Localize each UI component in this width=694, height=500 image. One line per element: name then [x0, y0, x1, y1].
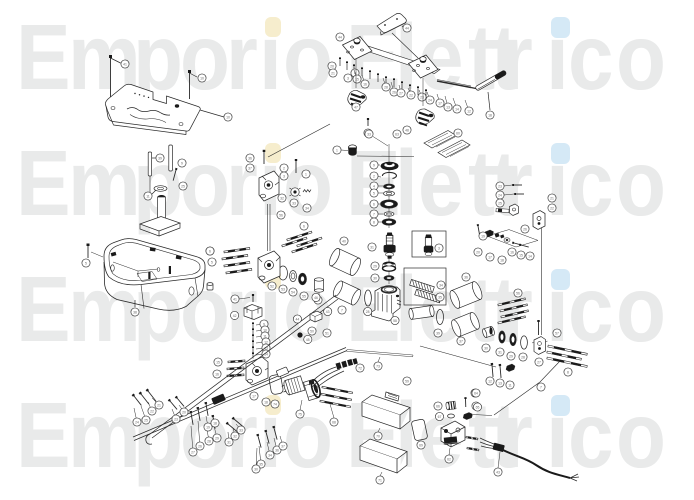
svg-text:65: 65 — [476, 406, 480, 410]
svg-text:8: 8 — [373, 221, 375, 225]
svg-text:15: 15 — [519, 254, 523, 258]
svg-text:44: 44 — [296, 318, 300, 322]
svg-text:30: 30 — [484, 347, 488, 351]
svg-text:21: 21 — [331, 72, 335, 76]
svg-text:38: 38 — [133, 311, 137, 315]
svg-text:24: 24 — [428, 99, 432, 103]
svg-text:26: 26 — [198, 445, 202, 449]
svg-text:52: 52 — [270, 285, 274, 289]
svg-text:39: 39 — [436, 332, 440, 336]
svg-text:58: 58 — [393, 319, 397, 323]
svg-text:41: 41 — [123, 63, 127, 67]
svg-text:56: 56 — [516, 292, 520, 296]
svg-text:18: 18 — [500, 259, 504, 263]
svg-text:34: 34 — [439, 284, 443, 288]
svg-text:7: 7 — [341, 309, 343, 313]
svg-text:10: 10 — [200, 77, 204, 81]
svg-text:42: 42 — [233, 314, 237, 318]
svg-text:1: 1 — [305, 173, 307, 177]
svg-text:13: 13 — [446, 106, 450, 110]
svg-text:23: 23 — [420, 96, 424, 100]
svg-text:26: 26 — [523, 228, 527, 232]
svg-text:36: 36 — [248, 157, 252, 161]
svg-text:18: 18 — [264, 401, 268, 405]
svg-text:48: 48 — [405, 129, 409, 133]
svg-text:22: 22 — [409, 94, 413, 98]
svg-text:18: 18 — [213, 422, 217, 426]
svg-text:44: 44 — [405, 27, 409, 31]
svg-text:34: 34 — [305, 207, 309, 211]
svg-text:31: 31 — [498, 351, 502, 355]
svg-text:30: 30 — [373, 277, 377, 281]
svg-text:55: 55 — [302, 295, 306, 299]
svg-text:28: 28 — [384, 86, 388, 90]
svg-text:56: 56 — [279, 214, 283, 218]
svg-text:75: 75 — [298, 413, 302, 417]
svg-text:3: 3 — [283, 175, 285, 179]
svg-text:44: 44 — [338, 36, 342, 40]
svg-text:59: 59 — [405, 380, 409, 384]
svg-text:16: 16 — [510, 251, 514, 255]
svg-text:51: 51 — [325, 332, 329, 336]
svg-text:12: 12 — [467, 110, 471, 114]
svg-text:25: 25 — [498, 202, 502, 206]
svg-text:22: 22 — [150, 410, 154, 414]
svg-text:39: 39 — [158, 157, 162, 161]
svg-text:36: 36 — [275, 449, 279, 453]
svg-text:3: 3 — [347, 77, 349, 81]
svg-text:15: 15 — [216, 361, 220, 365]
svg-text:6: 6 — [373, 203, 375, 207]
svg-text:16: 16 — [215, 373, 219, 377]
svg-text:7: 7 — [373, 213, 375, 217]
svg-text:31: 31 — [227, 441, 231, 445]
svg-text:24: 24 — [498, 194, 502, 198]
svg-text:24: 24 — [135, 421, 139, 425]
svg-text:9: 9 — [373, 164, 375, 168]
svg-text:60: 60 — [456, 132, 460, 136]
svg-text:28: 28 — [521, 356, 525, 360]
svg-text:29: 29 — [215, 437, 219, 441]
svg-text:62: 62 — [447, 458, 451, 462]
svg-text:21: 21 — [550, 197, 554, 201]
svg-text:28: 28 — [207, 440, 211, 444]
svg-text:6: 6 — [303, 225, 305, 229]
svg-text:12: 12 — [488, 380, 492, 384]
svg-text:33: 33 — [239, 429, 243, 433]
svg-text:34: 34 — [268, 454, 272, 458]
svg-text:14: 14 — [455, 108, 459, 112]
svg-text:43: 43 — [326, 310, 330, 314]
svg-text:27: 27 — [191, 451, 195, 455]
svg-text:11: 11 — [508, 384, 512, 388]
svg-text:5: 5 — [85, 262, 87, 266]
svg-text:29: 29 — [509, 355, 513, 359]
svg-text:5: 5 — [211, 261, 213, 265]
svg-text:41: 41 — [233, 298, 237, 302]
svg-text:40: 40 — [342, 240, 346, 244]
svg-text:2: 2 — [373, 175, 375, 179]
svg-text:7: 7 — [540, 386, 542, 390]
svg-text:47: 47 — [354, 106, 358, 110]
svg-text:2: 2 — [283, 167, 285, 171]
svg-text:68: 68 — [332, 421, 336, 425]
svg-text:37: 37 — [281, 445, 285, 449]
svg-text:66: 66 — [436, 405, 440, 409]
svg-text:31: 31 — [370, 246, 374, 250]
svg-text:1: 1 — [336, 149, 338, 153]
svg-text:16: 16 — [363, 83, 367, 87]
svg-text:33: 33 — [367, 133, 371, 137]
svg-text:21: 21 — [157, 404, 161, 408]
svg-text:69: 69 — [419, 444, 423, 448]
svg-text:9: 9 — [181, 162, 183, 166]
svg-text:71: 71 — [378, 479, 382, 483]
svg-text:10: 10 — [226, 116, 230, 120]
svg-text:73: 73 — [376, 365, 380, 369]
svg-text:25: 25 — [144, 419, 148, 423]
svg-text:45: 45 — [306, 338, 310, 342]
svg-text:19: 19 — [481, 235, 485, 239]
svg-text:70: 70 — [376, 435, 380, 439]
svg-text:67: 67 — [438, 415, 442, 419]
svg-text:43: 43 — [496, 471, 500, 475]
svg-text:53: 53 — [281, 288, 285, 292]
svg-text:25: 25 — [181, 185, 185, 189]
svg-text:29: 29 — [373, 265, 377, 269]
svg-text:57: 57 — [555, 332, 559, 336]
svg-text:35: 35 — [438, 296, 442, 300]
svg-text:50: 50 — [310, 330, 314, 334]
svg-text:11: 11 — [146, 195, 150, 199]
svg-text:20: 20 — [330, 65, 334, 69]
svg-text:54: 54 — [291, 291, 295, 295]
svg-text:17: 17 — [488, 256, 492, 260]
svg-text:32: 32 — [280, 197, 284, 201]
svg-text:23: 23 — [498, 185, 502, 189]
svg-text:13: 13 — [498, 382, 502, 386]
svg-text:72: 72 — [358, 367, 362, 371]
svg-text:64: 64 — [474, 392, 478, 396]
svg-text:28: 28 — [366, 310, 370, 314]
svg-text:8: 8 — [567, 371, 569, 375]
svg-text:20: 20 — [476, 251, 480, 255]
svg-text:35: 35 — [259, 463, 263, 467]
svg-text:33: 33 — [292, 202, 296, 206]
svg-text:20: 20 — [182, 411, 186, 415]
svg-text:74: 74 — [273, 403, 277, 407]
svg-text:17: 17 — [438, 102, 442, 106]
svg-text:5: 5 — [373, 192, 375, 196]
svg-text:30: 30 — [254, 468, 258, 472]
svg-text:14: 14 — [528, 255, 532, 259]
svg-text:37: 37 — [248, 167, 252, 171]
svg-text:32: 32 — [233, 435, 237, 439]
svg-text:63: 63 — [395, 133, 399, 137]
svg-text:37: 37 — [459, 340, 463, 344]
svg-text:17: 17 — [252, 395, 256, 399]
svg-text:27: 27 — [399, 92, 403, 96]
svg-text:6: 6 — [209, 250, 211, 254]
svg-text:36: 36 — [464, 276, 468, 280]
svg-text:22: 22 — [550, 207, 554, 211]
svg-text:4: 4 — [373, 185, 375, 189]
svg-text:23: 23 — [174, 418, 178, 422]
svg-text:18: 18 — [488, 114, 492, 118]
svg-text:3: 3 — [438, 247, 440, 251]
svg-text:19: 19 — [206, 426, 210, 430]
svg-text:46: 46 — [314, 296, 318, 300]
svg-text:15: 15 — [355, 78, 359, 82]
svg-text:27: 27 — [537, 361, 541, 365]
svg-text:26: 26 — [392, 91, 396, 95]
